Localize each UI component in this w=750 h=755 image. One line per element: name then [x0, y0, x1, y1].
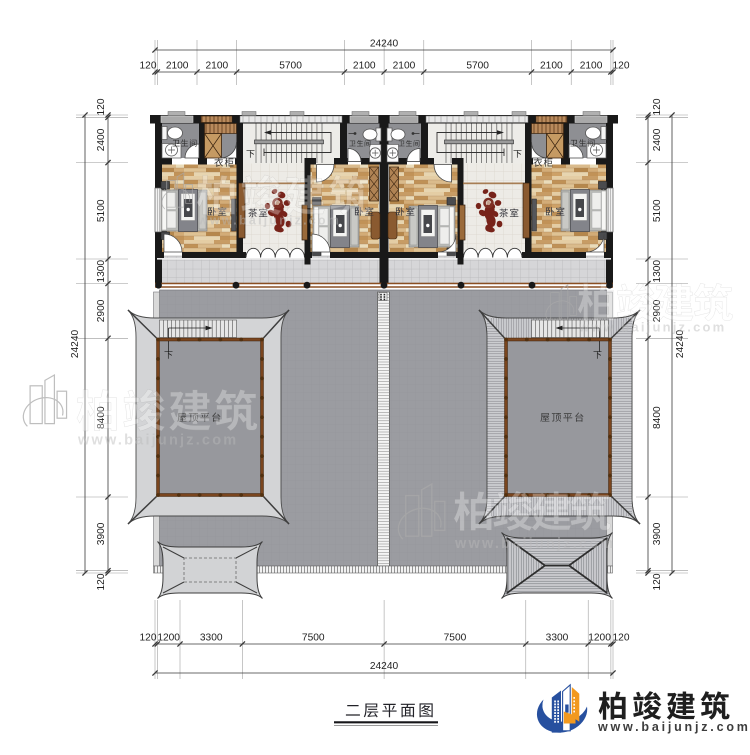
- svg-text:7500: 7500: [302, 633, 325, 644]
- svg-text:2100: 2100: [353, 61, 376, 72]
- svg-text:24240: 24240: [370, 661, 399, 672]
- svg-text:8400: 8400: [652, 406, 663, 429]
- svg-text:1300: 1300: [652, 260, 663, 283]
- svg-text:2100: 2100: [540, 61, 563, 72]
- svg-text:24240: 24240: [70, 330, 81, 359]
- svg-text:3900: 3900: [96, 522, 107, 545]
- svg-text:120: 120: [652, 573, 663, 590]
- svg-text:www.baijunjz.com: www.baijunjz.com: [197, 214, 341, 228]
- svg-text:www.baijunjz.com: www.baijunjz.com: [578, 320, 726, 335]
- svg-text:5100: 5100: [96, 199, 107, 222]
- svg-text:2100: 2100: [393, 61, 416, 72]
- svg-text:2100: 2100: [206, 61, 229, 72]
- svg-text:7500: 7500: [444, 633, 467, 644]
- svg-text:120: 120: [613, 61, 630, 72]
- svg-text:120: 120: [96, 573, 107, 590]
- svg-text:www.baijunjz.com: www.baijunjz.com: [597, 720, 750, 734]
- svg-text:3300: 3300: [200, 633, 223, 644]
- svg-text:5700: 5700: [466, 61, 489, 72]
- svg-text:120: 120: [140, 633, 157, 644]
- svg-text:www.baijunjz.com: www.baijunjz.com: [454, 536, 615, 552]
- svg-text:5700: 5700: [279, 61, 302, 72]
- svg-text:120: 120: [140, 61, 157, 72]
- svg-text:1200: 1200: [588, 633, 611, 644]
- svg-text:120: 120: [613, 633, 630, 644]
- svg-text:24240: 24240: [370, 39, 399, 50]
- svg-text:1300: 1300: [96, 260, 107, 283]
- svg-text:3900: 3900: [652, 522, 663, 545]
- svg-text:120: 120: [96, 98, 107, 115]
- svg-text:2400: 2400: [652, 128, 663, 151]
- svg-text:5100: 5100: [652, 199, 663, 222]
- svg-text:2100: 2100: [166, 61, 189, 72]
- svg-text:2100: 2100: [580, 61, 603, 72]
- svg-text:2400: 2400: [96, 128, 107, 151]
- svg-text:3300: 3300: [546, 633, 569, 644]
- svg-text:1200: 1200: [157, 633, 180, 644]
- svg-text:2900: 2900: [96, 299, 107, 322]
- svg-text:120: 120: [652, 98, 663, 115]
- svg-text:www.baijunjz.com: www.baijunjz.com: [77, 433, 238, 449]
